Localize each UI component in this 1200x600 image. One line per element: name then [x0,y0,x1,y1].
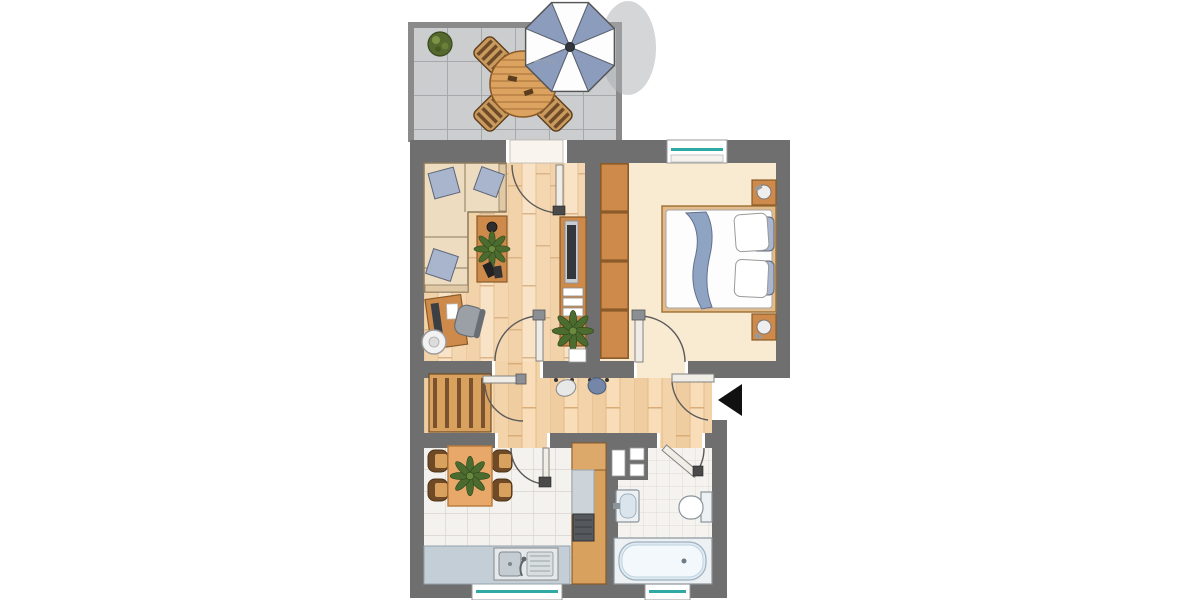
washbasin [613,490,639,522]
kitchen-chair [492,479,512,501]
drawer [563,288,583,296]
lamp [757,320,771,334]
floor-plan [0,0,1200,600]
wall-living-hall-2 [540,361,585,378]
table-plant [450,456,490,496]
upper-cabinet [572,443,606,470]
kitchen-door-threshold [498,433,547,448]
parasol [526,3,615,92]
bowl [487,222,497,232]
wall-bottom-1 [410,584,472,598]
wall-right-lower [712,420,727,598]
wall-niche [569,349,586,362]
entrance-arrow-icon [718,384,742,416]
coffee-table-plant [474,231,510,267]
toilet-bowl [679,496,703,519]
nightstand-top [752,180,776,205]
double-bed [662,206,776,312]
kitchen-window [472,584,562,600]
sideboard-plant [552,310,593,351]
wall-left [410,140,424,598]
sofa-armrest [425,285,468,292]
terrace-door-threshold [510,140,563,163]
wall-right-upper [776,140,790,378]
worktop [572,470,594,514]
coffee-table [474,216,510,282]
wall-bedroom-hall-1 [585,361,637,378]
bathroom-window [645,584,690,600]
nightstand-bottom [752,314,776,340]
wall-top-left [410,140,510,163]
terrace-plant [428,32,452,56]
tub-drain [682,559,687,564]
wall-bottom-3 [690,584,727,598]
round-chair [422,330,446,354]
remote [493,266,503,279]
wall-bottom-2 [562,584,645,598]
kitchen-chair [428,450,448,472]
bedroom-window [667,140,727,163]
bathtub [614,538,712,584]
pillow [734,259,769,298]
pillow [734,213,770,252]
wall-top-mid [563,140,667,163]
basin-faucet [613,503,620,509]
slatted-wardrobe [429,374,491,432]
kitchen-chair [492,450,512,472]
terrace-wall-left [408,22,414,142]
floor-plan-page [0,0,1200,600]
tall-counter [572,443,606,584]
drawer [563,298,583,306]
terrace [408,1,656,142]
wardrobe [600,163,629,359]
tv [567,225,576,279]
kitchen-chair [428,479,448,501]
sink-counter [424,546,570,584]
